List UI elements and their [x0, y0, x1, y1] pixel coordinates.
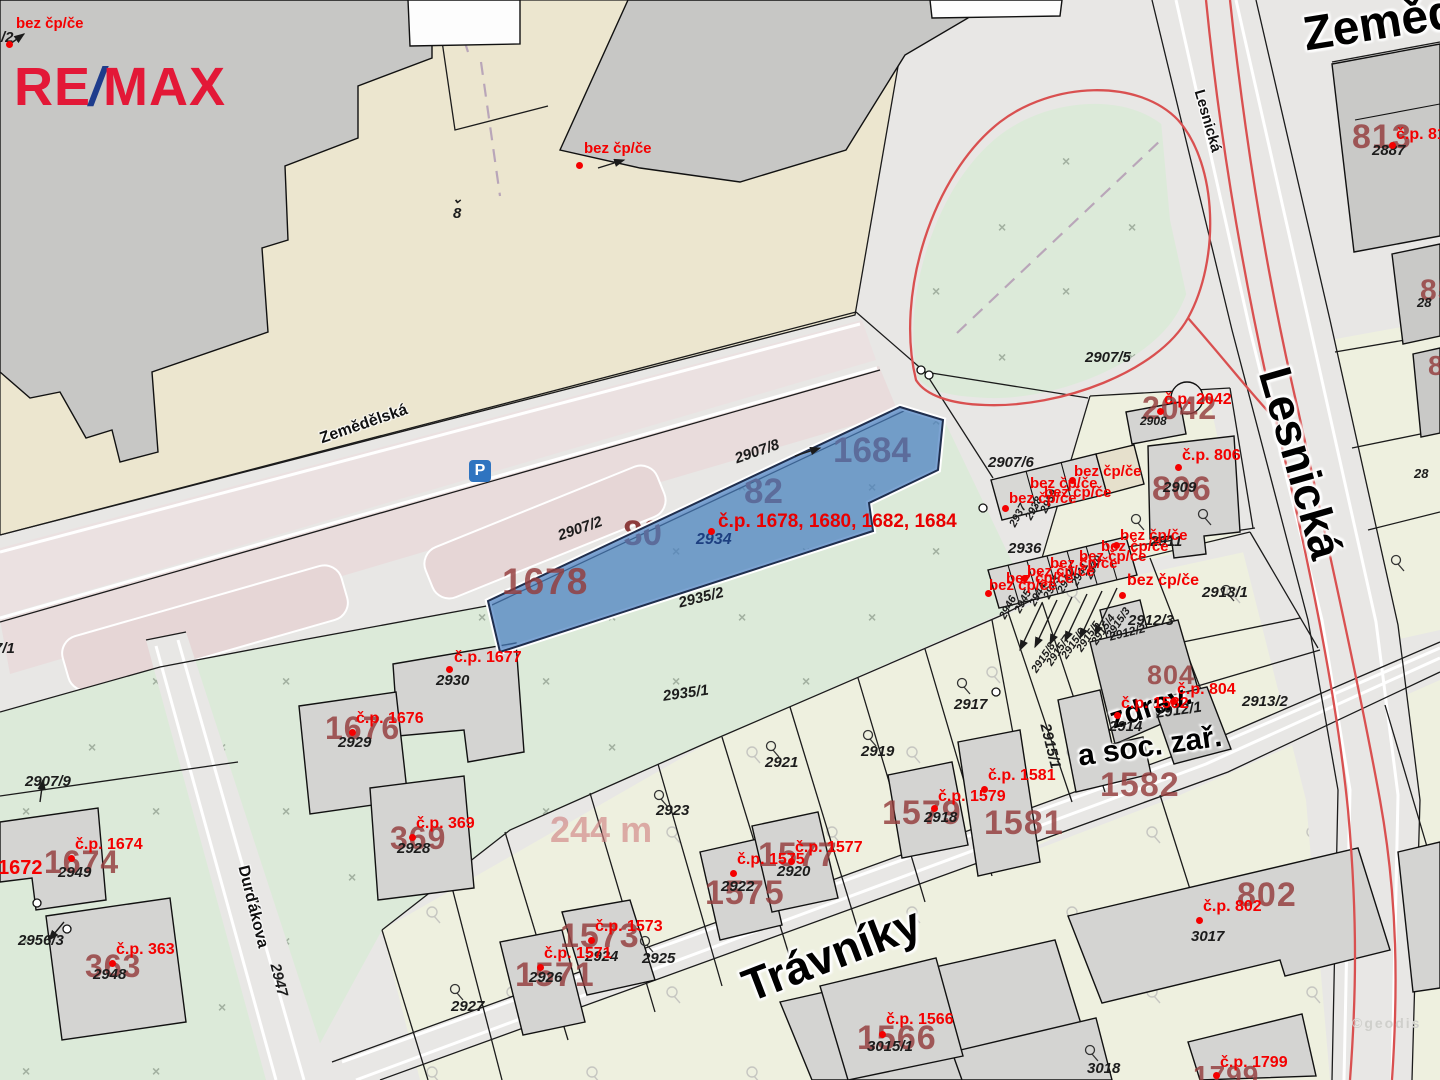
remax-logo: RE/MAX — [14, 56, 226, 118]
remax-logo-max: MAX — [103, 57, 226, 117]
cadastral-map[interactable]: × × — [0, 0, 1440, 1080]
map-canvas: × × — [0, 0, 1440, 1080]
watermark: ©geodis — [1352, 1016, 1421, 1030]
parking-icon: P — [469, 460, 491, 482]
remax-logo-re: RE — [14, 57, 91, 117]
